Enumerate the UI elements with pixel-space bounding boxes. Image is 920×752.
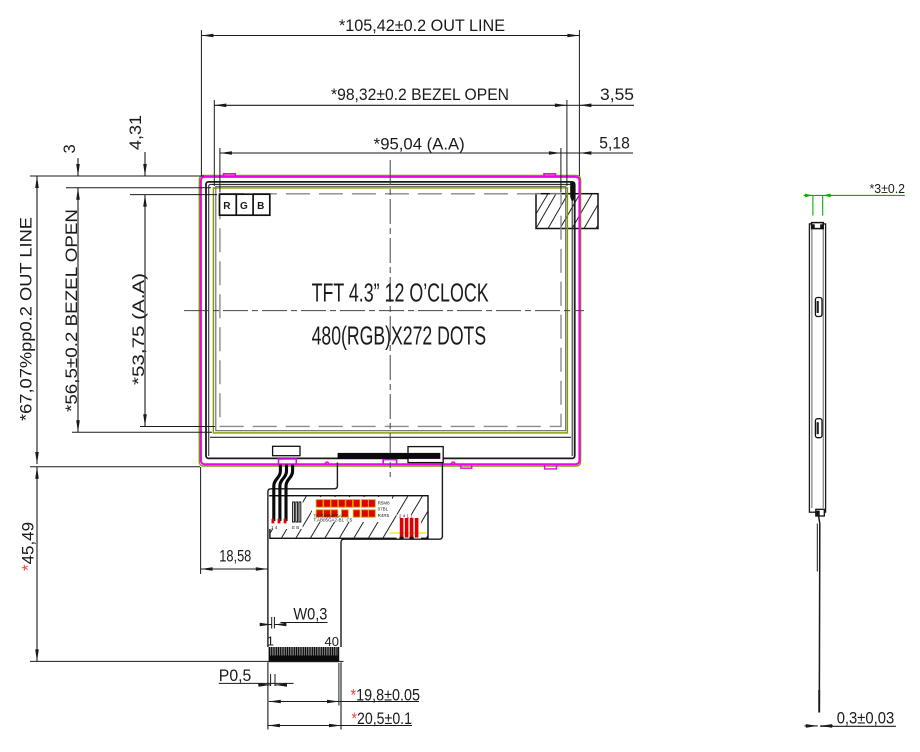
svg-text:W0,3: W0,3 [293,606,327,624]
svg-text:*53,75 (A.A): *53,75 (A.A) [130,273,148,385]
svg-text:*67,07%pp0.2 OUT LINE: *67,07%pp0.2 OUT LINE [18,217,36,421]
svg-text:P0,5: P0,5 [219,667,252,685]
svg-text:3: 3 [61,144,79,153]
svg-text:T.AB05GA2-B1 C5: T.AB05GA2-B1 C5 [314,518,353,523]
svg-text:2 4 1 1: 2 4 1 1 [399,514,413,519]
svg-text:1 4: 1 4 [271,525,278,530]
svg-text:*19,8±0.05: *19,8±0.05 [351,686,421,704]
svg-text:*98,32±0.2 BEZEL OPEN: *98,32±0.2 BEZEL OPEN [331,86,509,104]
svg-text:TFT 4.3” 12 O’CLOCK: TFT 4.3” 12 O’CLOCK [312,280,489,308]
svg-text:*45,49: *45,49 [20,522,38,571]
svg-text:4,31: 4,31 [127,115,145,150]
svg-text:R5M8: R5M8 [378,501,391,506]
svg-text:R4R5: R4R5 [378,513,390,518]
svg-text:*56,5±0.2 BEZEL OPEN: *56,5±0.2 BEZEL OPEN [63,209,81,412]
svg-text:3,55: 3,55 [600,86,634,104]
svg-text:G: G [240,201,248,212]
svg-text:0,3±0,03: 0,3±0,03 [837,710,895,728]
svg-text:5,18: 5,18 [599,135,630,153]
svg-text:*105,42±0.2 OUT LINE: *105,42±0.2 OUT LINE [339,17,505,35]
svg-text:*3±0.2: *3±0.2 [870,181,906,196]
svg-text:*95,04 (A.A): *95,04 (A.A) [374,135,465,153]
svg-text:18,58: 18,58 [219,548,251,566]
svg-text:480(RGB)X272 DOTS: 480(RGB)X272 DOTS [312,323,487,351]
svg-text:07BL: 07BL [378,507,389,512]
svg-text:*20,5±0.1: *20,5±0.1 [352,710,413,728]
svg-text:1: 1 [267,634,274,649]
svg-text:B: B [257,201,264,212]
svg-text:R: R [223,201,231,212]
svg-text:40: 40 [325,634,339,649]
svg-text:E B: E B [292,525,299,530]
